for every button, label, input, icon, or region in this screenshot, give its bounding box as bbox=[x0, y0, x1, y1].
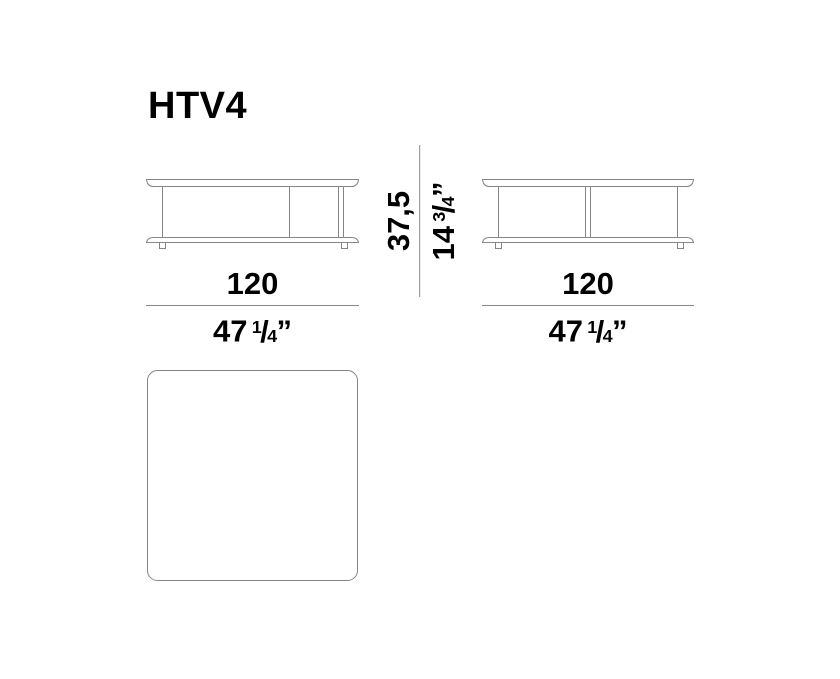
side-right-foot bbox=[678, 243, 684, 249]
front-width-metric-value: 120 bbox=[146, 266, 359, 306]
plan-view-top-outline bbox=[148, 371, 358, 581]
front-elevation-view bbox=[147, 180, 359, 249]
fraction-denominator: 4 bbox=[438, 197, 458, 206]
side-width-metric-value: 120 bbox=[482, 266, 694, 306]
side-top-shelf bbox=[483, 180, 694, 187]
side-width-dimension: 120 471/4” bbox=[482, 266, 694, 354]
height-imperial-value: 143/4” bbox=[420, 145, 467, 297]
side-bottom-shelf bbox=[483, 238, 694, 243]
height-imperial-fraction: 3/4 bbox=[426, 197, 461, 226]
front-right-foot bbox=[342, 243, 348, 249]
side-width-imperial-whole: 47 bbox=[548, 314, 582, 349]
front-left-foot bbox=[160, 243, 166, 249]
spec-sheet-page: HTV4 120 471/4” bbox=[0, 0, 840, 679]
fraction-denominator: 4 bbox=[267, 326, 276, 346]
fraction-slash: / bbox=[426, 205, 461, 213]
inch-mark: ” bbox=[426, 181, 461, 197]
side-elevation-view bbox=[483, 180, 694, 249]
side-width-imperial-fraction: 1/4 bbox=[583, 314, 612, 349]
inch-mark: ” bbox=[612, 314, 628, 349]
height-metric-value: 37,5 bbox=[381, 145, 420, 297]
fraction-denominator: 4 bbox=[603, 326, 612, 346]
height-imperial-whole: 14 bbox=[426, 226, 461, 260]
line-art bbox=[0, 0, 840, 679]
height-dimension: 37,5 143/4” bbox=[381, 145, 467, 297]
fraction-numerator: 3 bbox=[429, 212, 449, 221]
front-width-imperial-fraction: 1/4 bbox=[247, 314, 276, 349]
front-top-shelf bbox=[147, 180, 359, 187]
front-bottom-shelf bbox=[147, 238, 359, 243]
front-width-imperial-whole: 47 bbox=[213, 314, 247, 349]
front-width-dimension: 120 471/4” bbox=[146, 266, 359, 354]
inch-mark: ” bbox=[277, 314, 293, 349]
front-width-imperial-value: 471/4” bbox=[146, 306, 359, 354]
side-width-imperial-value: 471/4” bbox=[482, 306, 694, 354]
side-left-foot bbox=[496, 243, 502, 249]
